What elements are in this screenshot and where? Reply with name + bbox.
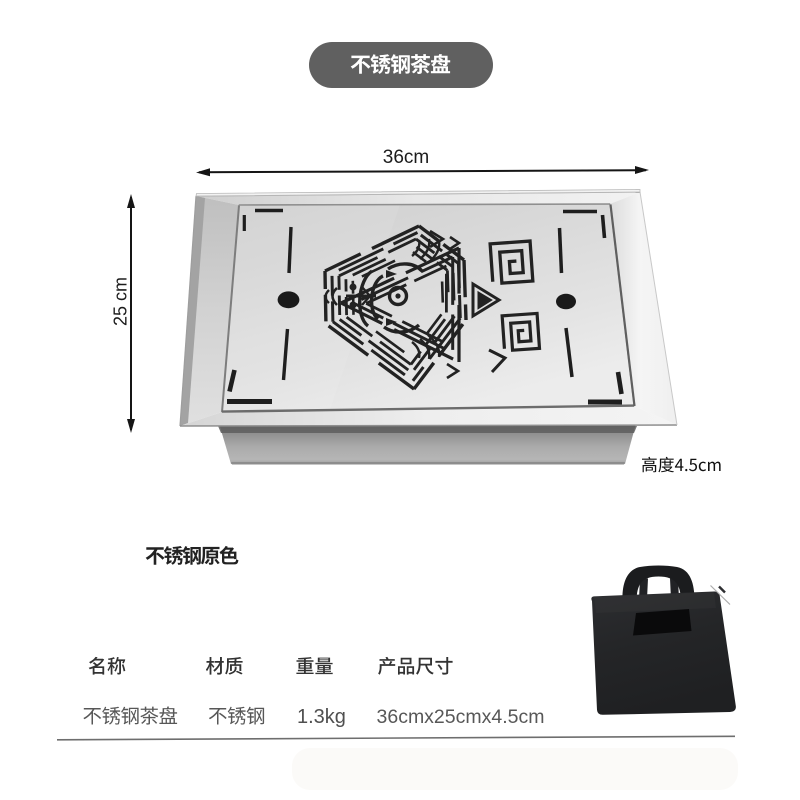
svg-text:25 cm: 25 cm [111,277,131,326]
svg-text:1.3kg: 1.3kg [297,706,346,728]
svg-text:36cmx25cmx4.5cm: 36cmx25cmx4.5cm [377,706,545,728]
svg-text:36cm: 36cm [383,147,429,168]
